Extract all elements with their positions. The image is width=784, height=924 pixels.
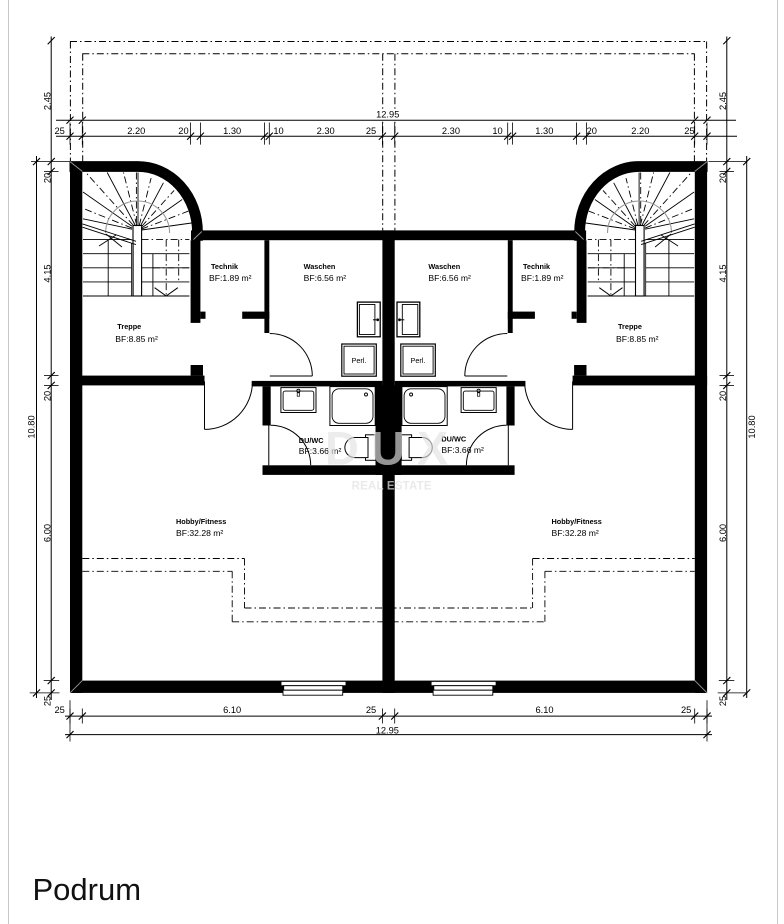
svg-text:BF:1.89 m²: BF:1.89 m² bbox=[521, 273, 564, 283]
svg-text:6.10: 6.10 bbox=[223, 705, 241, 715]
svg-text:1.30: 1.30 bbox=[223, 126, 241, 136]
svg-text:2.20: 2.20 bbox=[127, 126, 145, 136]
svg-text:4.15: 4.15 bbox=[42, 264, 52, 282]
svg-text:20: 20 bbox=[42, 173, 52, 183]
svg-text:25: 25 bbox=[55, 126, 65, 136]
svg-text:25: 25 bbox=[42, 696, 52, 706]
svg-text:BF:8.85 m²: BF:8.85 m² bbox=[616, 334, 659, 344]
svg-text:20: 20 bbox=[718, 173, 728, 183]
svg-text:6.00: 6.00 bbox=[42, 524, 52, 542]
svg-text:4.15: 4.15 bbox=[718, 264, 728, 282]
svg-text:DUX: DUX bbox=[325, 421, 460, 474]
svg-text:Technik: Technik bbox=[211, 262, 239, 271]
svg-text:6.10: 6.10 bbox=[536, 705, 554, 715]
svg-text:Treppe: Treppe bbox=[117, 322, 141, 331]
svg-text:20: 20 bbox=[42, 391, 52, 401]
svg-text:10.80: 10.80 bbox=[747, 415, 757, 438]
svg-text:BF:6.56 m²: BF:6.56 m² bbox=[428, 273, 471, 283]
svg-text:Perl.: Perl. bbox=[410, 356, 425, 365]
svg-text:25: 25 bbox=[718, 696, 728, 706]
svg-text:REAL ESTATE: REAL ESTATE bbox=[352, 481, 432, 493]
svg-text:BF:6.56 m²: BF:6.56 m² bbox=[304, 273, 347, 283]
svg-text:BF:32.28 m²: BF:32.28 m² bbox=[176, 528, 223, 538]
svg-text:BF:1.89 m²: BF:1.89 m² bbox=[209, 273, 252, 283]
svg-text:12.95: 12.95 bbox=[376, 725, 399, 735]
svg-text:25: 25 bbox=[55, 705, 65, 715]
svg-text:2.20: 2.20 bbox=[631, 126, 649, 136]
svg-text:Hobby/Fitness: Hobby/Fitness bbox=[176, 517, 226, 526]
svg-text:2.45: 2.45 bbox=[42, 92, 52, 110]
svg-text:20: 20 bbox=[718, 391, 728, 401]
svg-text:6.00: 6.00 bbox=[718, 524, 728, 542]
svg-text:20: 20 bbox=[178, 126, 188, 136]
svg-text:20: 20 bbox=[587, 126, 597, 136]
svg-text:Technik: Technik bbox=[523, 262, 551, 271]
svg-text:DU/WC: DU/WC bbox=[299, 436, 324, 445]
svg-text:2.30: 2.30 bbox=[442, 126, 460, 136]
svg-text:Perl.: Perl. bbox=[351, 356, 366, 365]
svg-text:12.95: 12.95 bbox=[376, 109, 399, 119]
svg-text:25: 25 bbox=[366, 705, 376, 715]
svg-text:Hobby/Fitness: Hobby/Fitness bbox=[552, 517, 602, 526]
svg-text:BF:32.28 m²: BF:32.28 m² bbox=[552, 528, 599, 538]
svg-text:2.30: 2.30 bbox=[317, 126, 335, 136]
svg-text:10.80: 10.80 bbox=[27, 415, 37, 438]
svg-text:1.30: 1.30 bbox=[535, 126, 553, 136]
svg-text:25: 25 bbox=[681, 705, 691, 715]
svg-text:10: 10 bbox=[492, 126, 502, 136]
svg-text:25: 25 bbox=[366, 126, 376, 136]
svg-text:2.45: 2.45 bbox=[718, 92, 728, 110]
svg-text:BF:8.85 m²: BF:8.85 m² bbox=[115, 334, 158, 344]
svg-text:Treppe: Treppe bbox=[618, 322, 642, 331]
svg-text:Waschen: Waschen bbox=[428, 262, 460, 271]
svg-text:25: 25 bbox=[684, 126, 694, 136]
svg-text:10: 10 bbox=[273, 126, 283, 136]
svg-text:Waschen: Waschen bbox=[304, 262, 336, 271]
